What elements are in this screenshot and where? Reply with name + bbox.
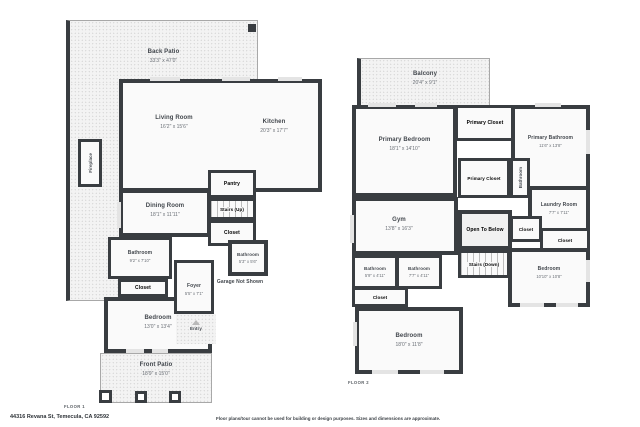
room-name: Primary Bedroom: [379, 137, 431, 145]
room-name: Stairs (Up): [218, 207, 246, 212]
window: [150, 77, 180, 81]
room-name: Laundry Room: [541, 202, 577, 209]
room-name: Pantry: [224, 181, 240, 187]
stairs-down: Stairs (Down): [458, 250, 510, 278]
window: [586, 260, 590, 282]
primary-closet-2: Primary Closet: [458, 158, 510, 198]
laundry-room-label: Laundry Room 7'7" x 7'11": [532, 202, 586, 215]
room-dims: 10'10" x 10'8": [536, 274, 561, 279]
bathroom-left: Bathroom 9'2" x 7'10": [108, 237, 172, 279]
room-dims: 18'1" x 11'11": [150, 212, 179, 219]
room-name: Bathroom: [408, 266, 430, 272]
room-name: Gym: [392, 217, 406, 225]
window: [353, 322, 357, 346]
gym: Gym 13'8" x 16'3": [352, 197, 458, 255]
bathroom-small: Bathroom 5'3" x 5'6": [228, 240, 268, 276]
front-patio-area: Front Patio 18'9" x 15'0": [100, 353, 212, 403]
bedroom-closet: Closet: [118, 279, 168, 297]
room-dims: 20'4" x 9'1": [413, 80, 438, 87]
window: [420, 370, 444, 374]
pantry: Pantry: [208, 170, 256, 198]
foyer: Foyer 5'5" x 7'1": [174, 260, 214, 314]
window: [222, 77, 250, 81]
bathroom-b-label: Bathroom 7'7" x 4'11": [399, 258, 439, 286]
window: [117, 202, 121, 228]
room-name: Foyer: [187, 283, 201, 290]
fireplace: Fireplace: [78, 139, 102, 187]
window: [586, 130, 590, 154]
room-dims: 7'7" x 4'11": [409, 273, 429, 278]
room-name: Bathroom: [237, 252, 259, 258]
window: [535, 103, 561, 107]
back-patio-label: Back Patio 33'3" x 47'0": [70, 49, 257, 64]
floor1-tag: FLOOR 1: [64, 404, 85, 409]
closet-a: Closet: [510, 216, 542, 242]
room-name: Bathroom: [364, 266, 386, 272]
room-dims: 18'0" x 11'8": [395, 342, 422, 349]
primary-bathroom-label: Primary Bathroom 11'6" x 13'8": [515, 135, 586, 148]
open-to-below: Open To Below: [458, 210, 512, 250]
window: [126, 349, 144, 353]
window: [368, 103, 396, 107]
room-name: Closet: [373, 295, 387, 300]
patio-column-icon: [169, 391, 181, 403]
open-to-below-label: Open To Below: [466, 227, 503, 233]
living-room-label: Living Room 16'2" x 15'6": [125, 115, 223, 130]
room-dims: 18'1" x 14'10": [389, 146, 419, 153]
property-address: 44316 Revana St, Temecula, CA 92592: [10, 414, 109, 420]
bedroom-bottom: Bedroom 18'0" x 11'8": [355, 307, 463, 374]
front-patio-label: Front Patio 18'9" x 15'0": [101, 362, 211, 377]
entry-label: Entry: [176, 320, 216, 332]
patio-column-icon: [135, 391, 147, 403]
room-name: Primary Bathroom: [528, 135, 573, 142]
closet-c: Closet: [352, 287, 408, 307]
room-name: Entry: [190, 326, 202, 332]
dining-room-label: Dining Room 18'1" x 11'11": [123, 203, 207, 218]
room-name: Balcony: [413, 71, 437, 79]
room-dims: 11'6" x 13'8": [539, 143, 562, 148]
room-name: Front Patio: [140, 362, 173, 370]
floorplan-canvas: Back Patio 33'3" x 47'0" Living Room 16'…: [0, 0, 640, 427]
room-name: Closet: [135, 285, 151, 291]
room-name: Kitchen: [263, 119, 286, 127]
window: [372, 370, 398, 374]
room-dims: 18'9" x 15'0": [142, 371, 169, 378]
room-name: Primary Closet: [467, 176, 500, 181]
room-dims: 13'0" x 13'4": [144, 324, 171, 331]
stairs-up: Stairs (Up): [208, 198, 256, 220]
room-dims: 13'8" x 16'3": [385, 226, 412, 233]
bedroom-right-label: Bedroom 10'10" x 10'8": [512, 266, 586, 279]
balcony-label: Balcony 20'4" x 9'1": [361, 71, 489, 86]
primary-bedroom-label: Primary Bedroom 18'1" x 14'10": [356, 137, 453, 152]
kitchen-label: Kitchen 20'3" x 17'7": [226, 119, 322, 134]
window: [415, 103, 437, 107]
room-name: Bedroom: [538, 266, 561, 273]
fireplace-label: Fireplace: [88, 153, 93, 173]
back-patio-area: Back Patio 33'3" x 47'0": [66, 20, 258, 83]
foyer-label: Foyer 5'5" x 7'1": [177, 283, 211, 296]
bathroom-a-label: Bathroom 5'9" x 4'11": [355, 258, 395, 286]
room-dims: 5'9" x 4'11": [365, 273, 385, 278]
bathroom-b: Bathroom 7'7" x 4'11": [396, 255, 442, 289]
window: [152, 349, 168, 353]
window: [350, 215, 354, 243]
floor2-tag: FLOOR 2: [348, 380, 369, 385]
room-name: Closet: [519, 227, 533, 232]
room-name: Primary Closet: [467, 120, 504, 126]
room-dims: 5'5" x 7'1": [185, 291, 203, 296]
disclaimer-text: Floor plans/tour cannot be used for buil…: [216, 416, 440, 421]
window: [556, 303, 578, 307]
room-name: Dining Room: [146, 203, 184, 211]
entry-arrow-icon: [192, 320, 200, 325]
room-dims: 33'3" x 47'0": [150, 58, 177, 65]
gym-label: Gym 13'8" x 16'3": [356, 217, 442, 232]
bathroom-left-label: Bathroom 9'2" x 7'10": [111, 250, 169, 263]
room-name: Bedroom: [144, 315, 171, 323]
primary-bedroom: Primary Bedroom 18'1" x 14'10": [352, 105, 457, 197]
room-name: Closet: [224, 230, 240, 236]
room-name: Back Patio: [148, 49, 180, 57]
balcony-area: Balcony 20'4" x 9'1": [357, 58, 490, 108]
room-name: Bathroom: [128, 250, 152, 257]
hall-bathroom-label: Bathroom: [518, 167, 523, 188]
room-dims: 9'2" x 7'10": [130, 258, 151, 263]
room-dims: 20'3" x 17'7": [260, 128, 287, 135]
window: [520, 303, 544, 307]
dining-room: Dining Room 18'1" x 11'11": [119, 189, 211, 237]
bedroom-right: Bedroom 10'10" x 10'8": [508, 248, 590, 307]
patio-post-icon: [248, 24, 256, 32]
bedroom-bottom-label: Bedroom 18'0" x 11'8": [359, 333, 459, 348]
bathroom-a: Bathroom 5'9" x 4'11": [352, 255, 398, 289]
patio-column-icon: [99, 390, 112, 403]
room-name: Stairs (Down): [467, 262, 501, 267]
room-name: Living Room: [155, 115, 192, 123]
hall-bathroom: Bathroom: [510, 158, 530, 198]
room-name: Closet: [558, 238, 572, 243]
garage-note-text: Garage Not Shown: [217, 279, 263, 286]
room-name: Bedroom: [395, 333, 422, 341]
entry-area: Entry: [176, 314, 216, 344]
primary-closet-1: Primary Closet: [455, 105, 515, 141]
window: [278, 77, 302, 81]
bathroom-small-label: Bathroom 5'3" x 5'6": [232, 244, 264, 272]
room-dims: 16'2" x 15'6": [160, 124, 187, 131]
room-dims: 7'7" x 7'11": [549, 210, 569, 215]
room-dims: 5'3" x 5'6": [239, 259, 257, 264]
